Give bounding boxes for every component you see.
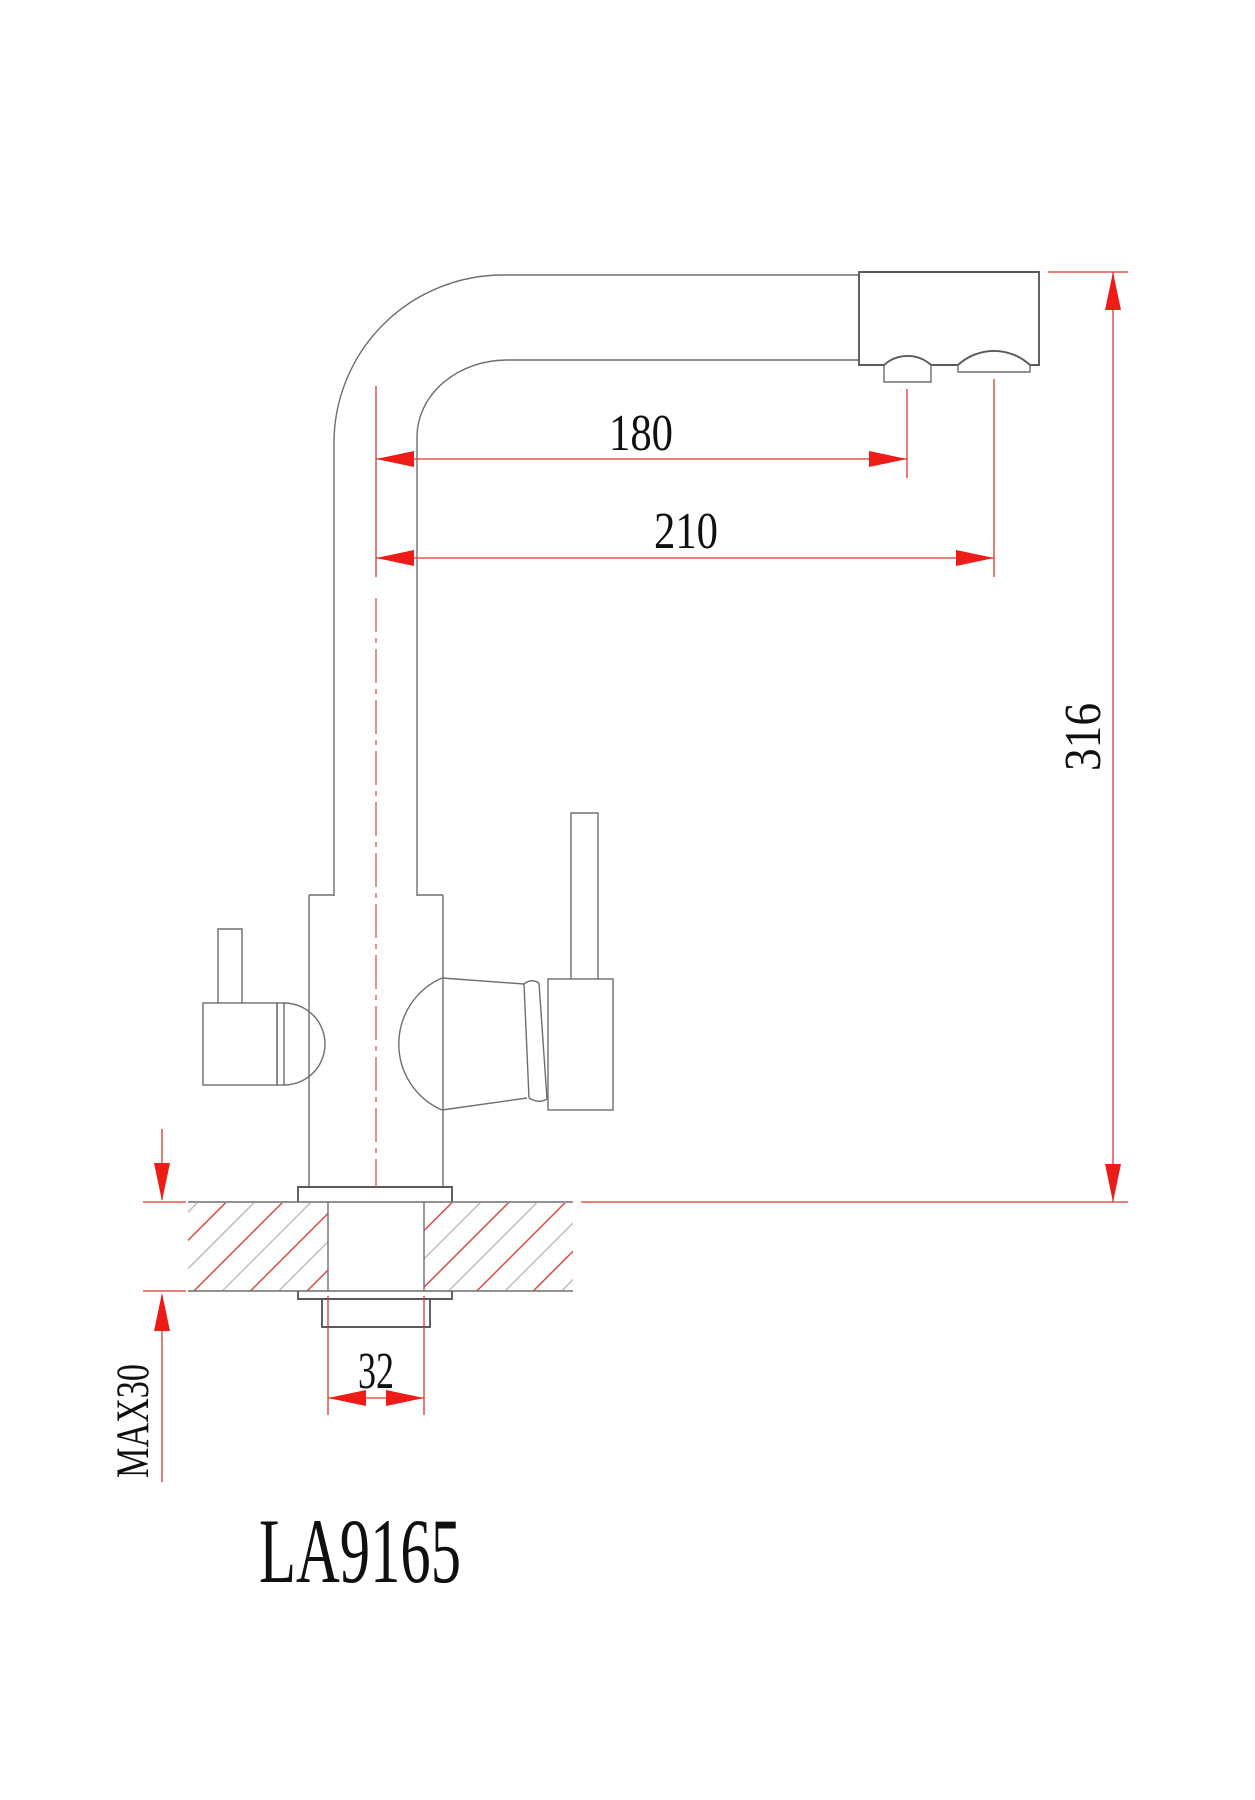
- left-handle-ring: [277, 1003, 284, 1085]
- countertop-hatch-left: [188, 1203, 328, 1291]
- dim-316-label: 316: [1055, 703, 1112, 771]
- threaded-shank: [328, 1202, 424, 1291]
- dimension-labels: 180 210 316 32 MAX30: [107, 405, 1112, 1478]
- dim-316-arrow-bottom: [1105, 1164, 1121, 1202]
- countertop-hatch-right: [424, 1203, 573, 1291]
- drawing-sheet: 180 210 316 32 MAX30 LA9165: [0, 0, 1255, 1800]
- right-handle: [399, 813, 613, 1110]
- dim-180-arrow-right: [869, 451, 907, 467]
- dim-max30-arrow-up: [154, 1293, 170, 1331]
- dim-210-arrow-left: [376, 550, 414, 566]
- filtered-aerator-collar: [884, 365, 931, 382]
- dim-180-label: 180: [609, 405, 673, 462]
- ball-joint: [399, 978, 442, 1110]
- dim-max30-label: MAX30: [107, 1364, 159, 1478]
- dim-max30-arrow-down: [154, 1163, 170, 1201]
- left-handle-cap: [284, 1003, 325, 1085]
- base-flange: [298, 1187, 452, 1202]
- ball-joint-bottom-edge: [442, 1098, 527, 1110]
- left-handle-stem: [218, 929, 242, 1003]
- right-handle-stem: [571, 813, 598, 979]
- left-handle-body: [203, 1003, 277, 1085]
- dim-316-arrow-top: [1105, 272, 1121, 310]
- spout-head: [859, 272, 1039, 365]
- dim-180-arrow-left: [376, 451, 414, 467]
- left-handle: [203, 929, 325, 1085]
- ball-joint-connector: [524, 981, 547, 1102]
- dim-210-label: 210: [654, 503, 718, 560]
- product-code-label: LA9165: [259, 1500, 461, 1602]
- right-handle-base: [548, 979, 613, 1110]
- technical-drawing: 180 210 316 32 MAX30 LA9165: [0, 0, 1255, 1800]
- body-sides: [309, 895, 443, 1187]
- countertop-section: [188, 1202, 573, 1291]
- washer: [298, 1291, 452, 1299]
- dim-210-arrow-right: [956, 550, 994, 566]
- mounting-nut: [322, 1299, 430, 1327]
- ball-joint-top-edge: [442, 978, 524, 984]
- spout-outer-edge: [334, 275, 859, 896]
- main-aerator-collar: [958, 365, 1030, 372]
- dim-32-label: 32: [358, 1343, 394, 1400]
